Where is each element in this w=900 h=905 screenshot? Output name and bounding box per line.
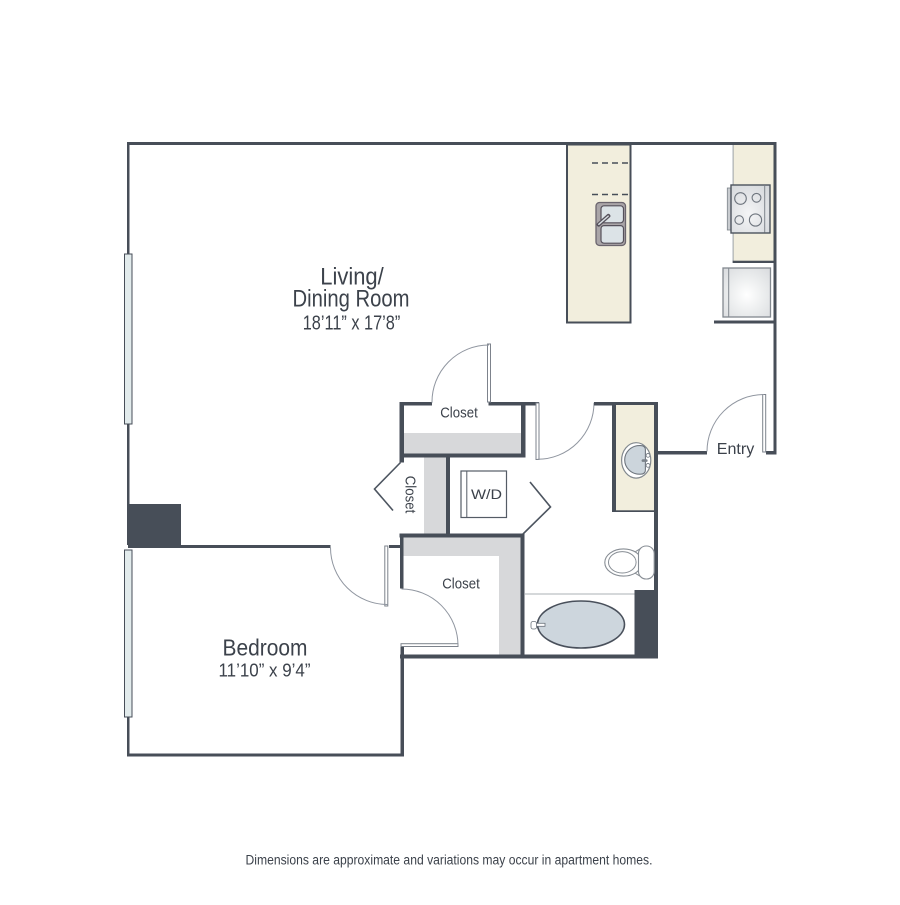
svg-text:Closet: Closet [402,476,418,514]
svg-text:Dimensions are approximate and: Dimensions are approximate and variation… [246,853,653,868]
svg-text:Bedroom: Bedroom [223,635,308,661]
svg-text:Entry: Entry [717,441,755,458]
svg-text:W/D: W/D [471,486,502,502]
svg-text:Dining Room: Dining Room [293,286,410,313]
svg-text:Closet: Closet [442,577,480,593]
svg-text:11’10” x 9’4”: 11’10” x 9’4” [219,661,311,681]
svg-text:Closet: Closet [440,406,478,422]
svg-text:18’11” x 17’8”: 18’11” x 17’8” [303,312,401,335]
